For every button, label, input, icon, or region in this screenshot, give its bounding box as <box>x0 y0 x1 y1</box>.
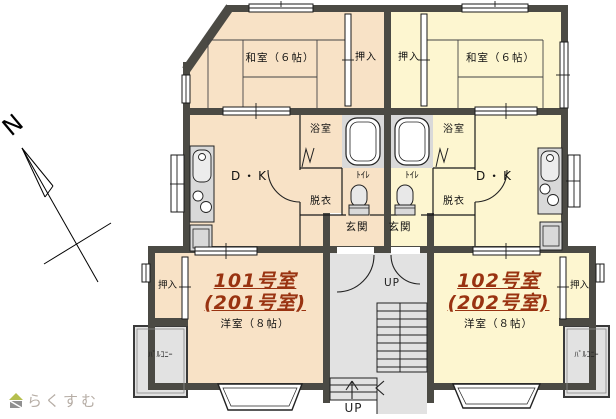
label-oshiire-top-left: 押入 <box>348 52 384 63</box>
label-oshiire-bottom-right: 押入 <box>563 281 596 291</box>
label-toilet-left: ﾄｲﾚ <box>342 172 384 182</box>
wall-balcony-top-right <box>559 318 596 326</box>
label-western-room-102: 洋室（８帖） <box>434 319 563 331</box>
label-balcony-right: ﾊﾞﾙｺﾆｰ <box>563 351 610 360</box>
label-bath-right: 浴室 <box>433 124 475 135</box>
label-dk-left: D・K <box>195 170 305 183</box>
room-number-102: 102号室 <box>434 271 563 292</box>
label-dressing-left: 脱衣 <box>300 196 342 207</box>
logo-site-name: らくすむ <box>27 393 99 410</box>
wall-right-upper <box>561 5 568 253</box>
floorplan-canvas: 和室（６帖） 和室（６帖） 押入 押入 D・K D・K 浴室 浴室 ﾄｲﾚ ﾄｲ… <box>0 0 616 419</box>
label-genkan-left: 玄関 <box>330 222 384 234</box>
north-label: N <box>0 109 28 141</box>
wall-mid-right <box>391 108 561 115</box>
room-number-202: (202号室) <box>434 293 563 314</box>
room-bath-right <box>433 115 475 168</box>
wall-cross <box>148 246 596 253</box>
north-arrow-icon <box>22 148 111 282</box>
hall-floor-patch <box>330 383 427 400</box>
wall-hall-left <box>323 213 330 403</box>
label-genkan-right: 玄関 <box>378 222 422 234</box>
label-up-entrance: UP <box>384 278 400 290</box>
label-dressing-right: 脱衣 <box>433 196 475 207</box>
wall-top <box>226 5 568 12</box>
label-washitsu-left: 和室（６帖） <box>213 53 347 65</box>
label-bath-left: 浴室 <box>300 124 342 135</box>
label-oshiire-bottom-left: 押入 <box>148 281 187 291</box>
wall-left-upper <box>183 62 190 253</box>
room-bath-left <box>300 115 342 168</box>
label-western-room-101: 洋室（８帖） <box>187 319 323 331</box>
label-up-bottom: UP <box>330 402 377 415</box>
wall-balcony-top-left <box>148 318 188 326</box>
room-number-201: (201号室) <box>187 293 323 314</box>
label-oshiire-top-right: 押入 <box>391 52 427 63</box>
label-toilet-right: ﾄｲﾚ <box>391 172 433 182</box>
stair-hall-extension <box>377 400 427 414</box>
bathtub-area-left <box>342 115 384 168</box>
corridor-right <box>434 213 475 246</box>
wall-hall-right <box>427 213 434 403</box>
wall-mid-left <box>190 108 384 115</box>
stair-hall <box>330 253 427 400</box>
wall-center-units <box>384 5 391 246</box>
room-number-101: 101号室 <box>187 271 323 292</box>
logo-house-icon <box>9 393 23 408</box>
label-balcony-left: ﾊﾞﾙｺﾆｰ <box>133 351 188 360</box>
label-washitsu-right: 和室（６帖） <box>437 53 564 65</box>
label-dk-right: D・K <box>450 170 540 183</box>
corridor-left <box>300 213 323 246</box>
bathtub-area-right <box>391 115 433 168</box>
